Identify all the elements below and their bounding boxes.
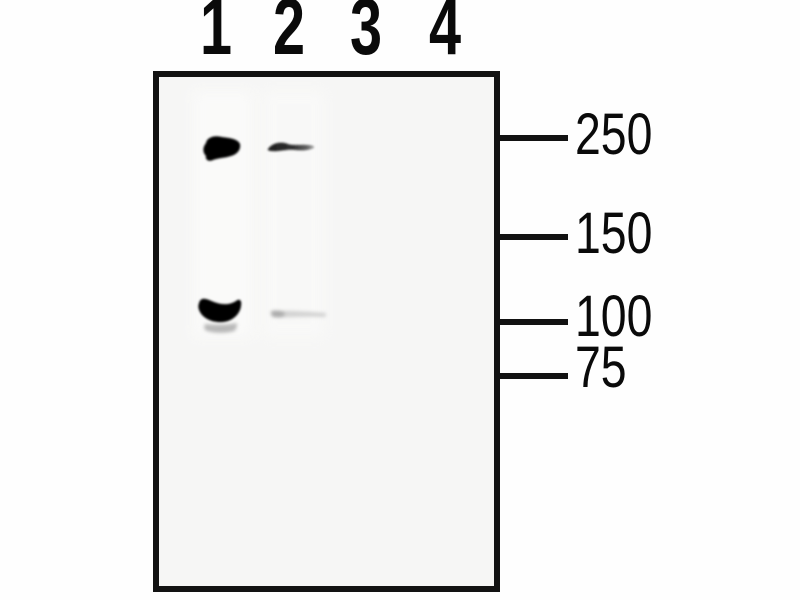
mw-label-75: 75 <box>575 339 627 397</box>
mw-label-150: 150 <box>575 205 652 263</box>
mw-label-250: 250 <box>575 106 652 164</box>
western-blot-figure: 1 2 3 4 250 150 100 75 <box>0 0 800 600</box>
blot-svg-layer <box>0 0 800 600</box>
mw-ticks <box>497 138 568 376</box>
lane-label-3: 3 <box>350 0 382 67</box>
lane2-membrane-smudge <box>263 90 325 338</box>
lane-label-4: 4 <box>429 0 461 67</box>
lane-label-2: 2 <box>273 0 305 67</box>
lane-label-1: 1 <box>200 0 232 67</box>
